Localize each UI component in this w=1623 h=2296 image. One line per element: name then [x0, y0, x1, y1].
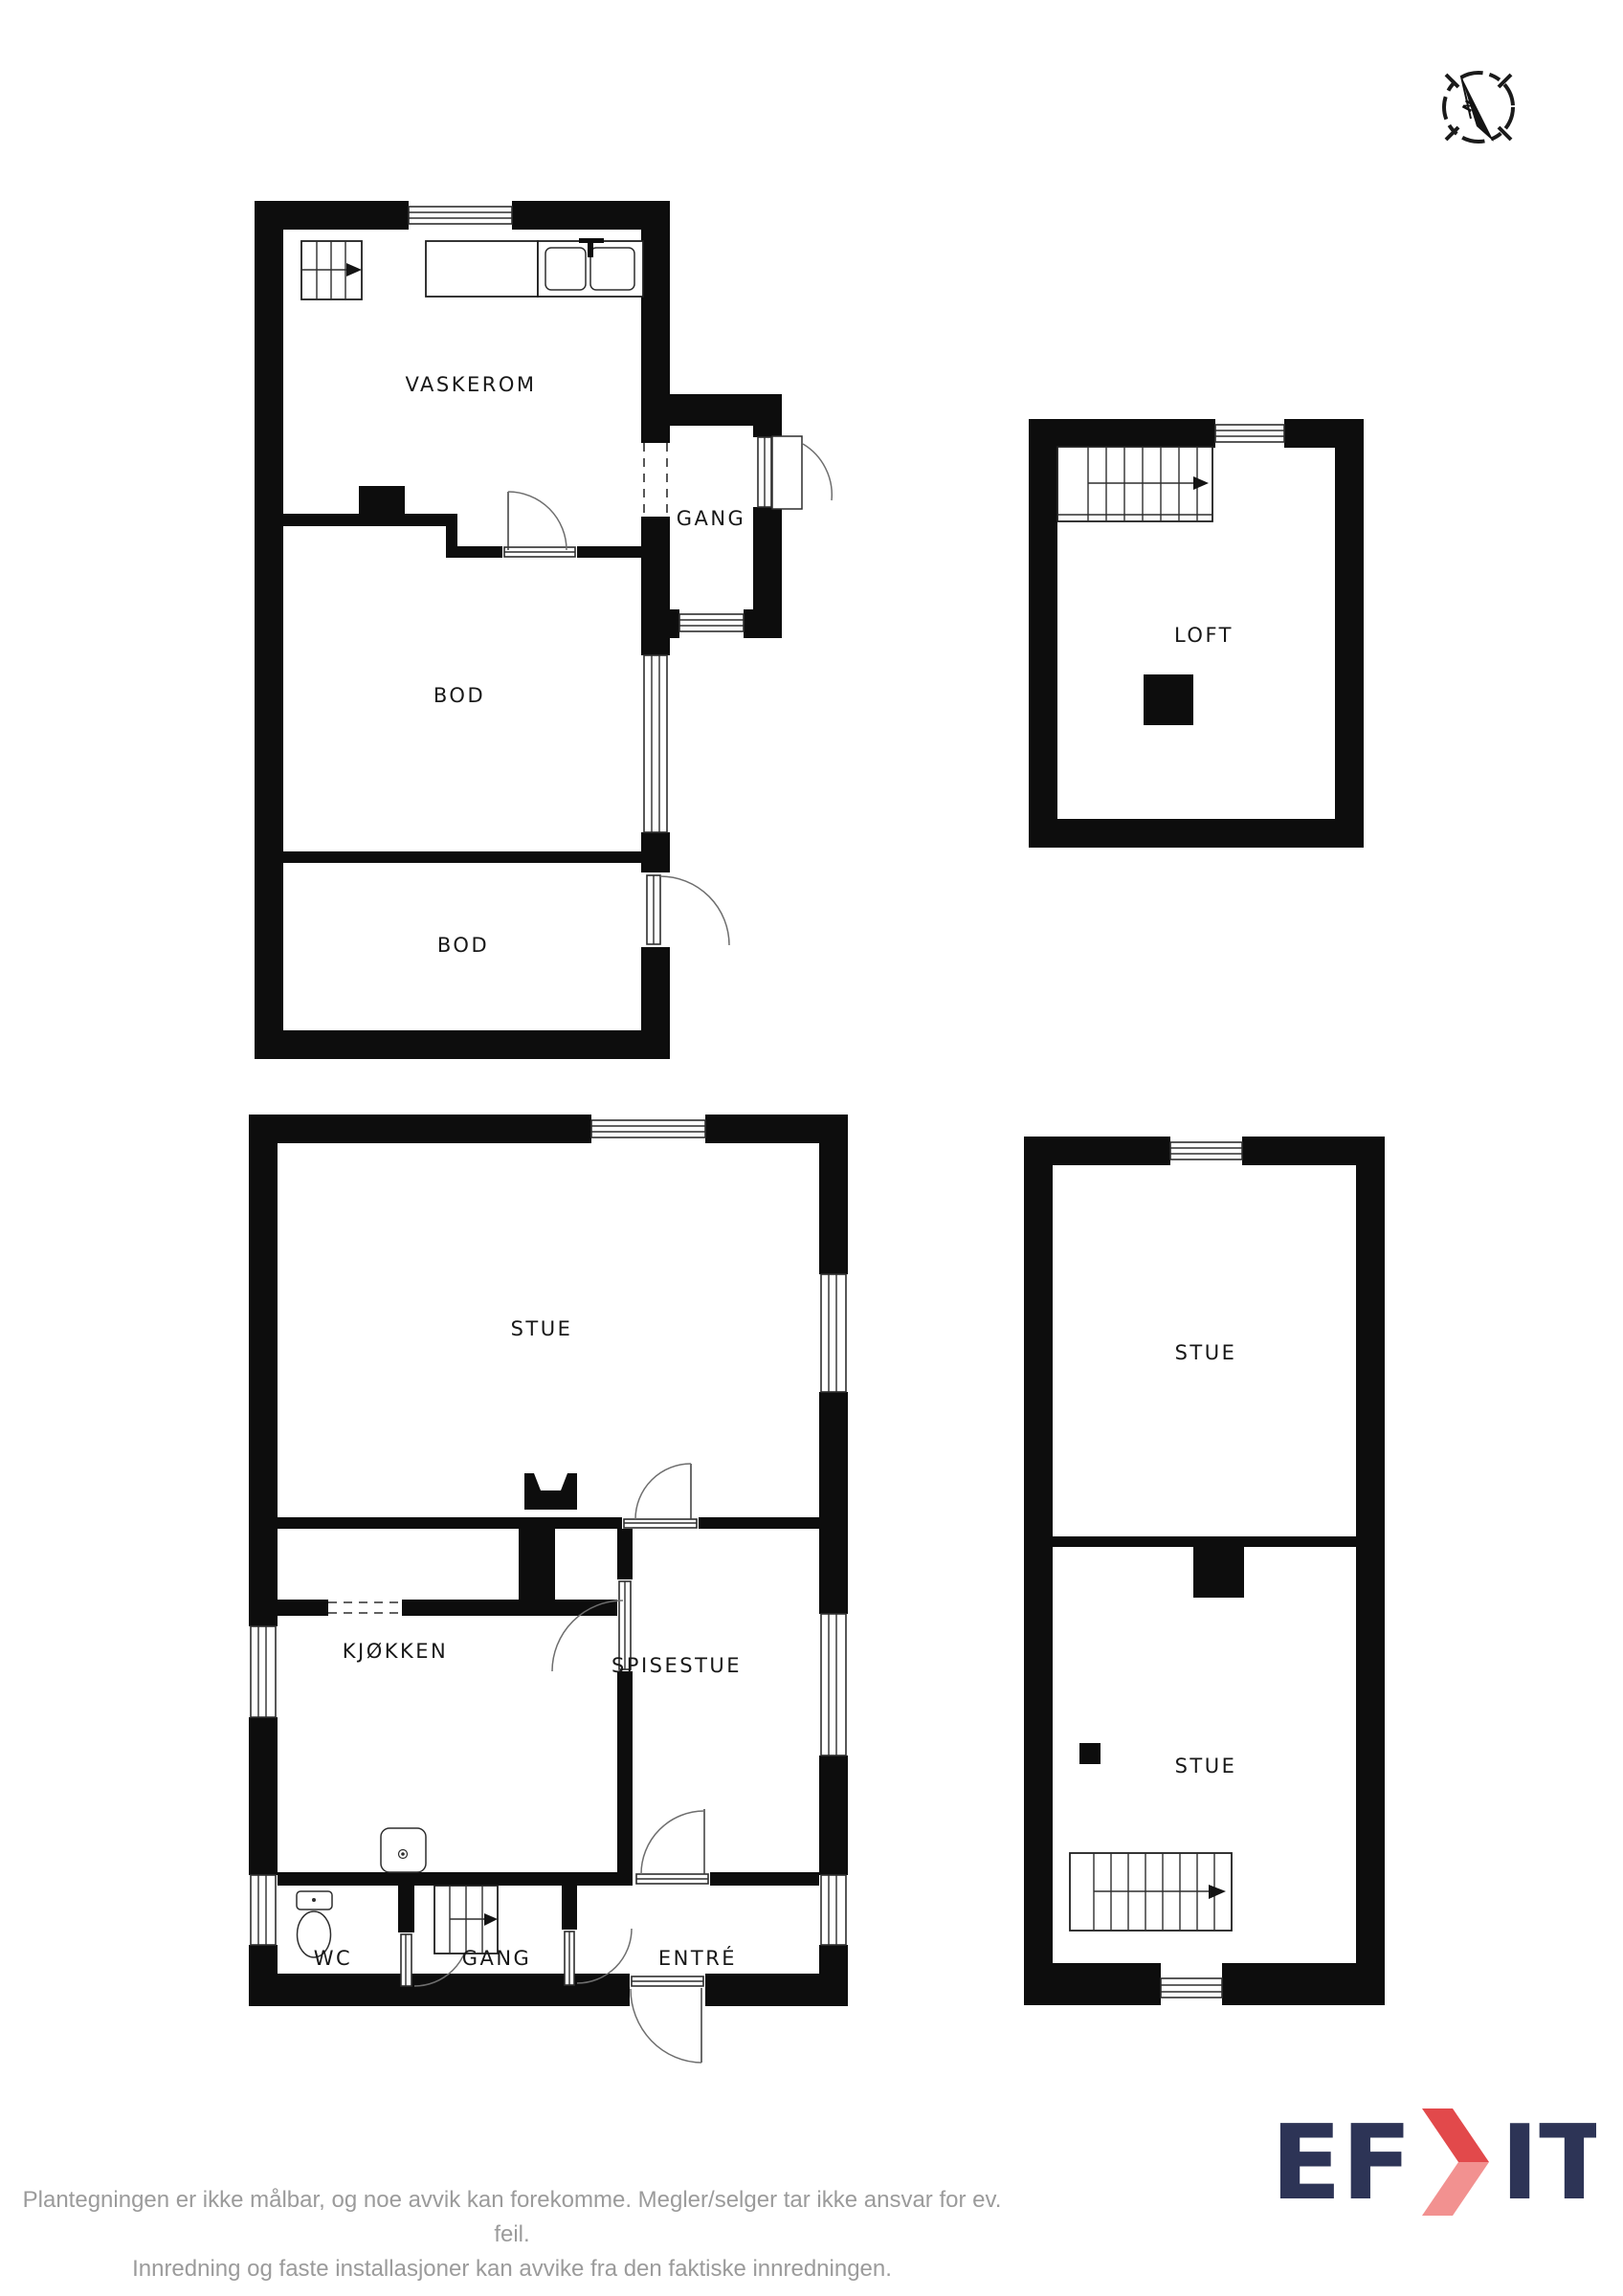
- window-symbol: [251, 1875, 276, 1945]
- compass-icon: N: [1444, 73, 1513, 142]
- efkt-logo: EF IT: [1271, 2105, 1596, 2223]
- room-label-vaskerom: VASKEROM: [406, 373, 537, 396]
- disclaimer-text: Plantegningen er ikke målbar, og noe avv…: [19, 2183, 1005, 2286]
- logo-text-right: IT: [1501, 2105, 1596, 2223]
- window-symbol: [251, 1626, 276, 1717]
- floor-plan-upper: STUE STUE: [1024, 1137, 1385, 2005]
- double-sink-icon: [538, 238, 643, 297]
- disclaimer-line-1: Plantegningen er ikke målbar, og noe avv…: [19, 2183, 1005, 2252]
- logo-chevron-lower: [1422, 2162, 1489, 2216]
- room-label-wc: WC: [314, 1947, 352, 1970]
- door-swing-icon: [502, 492, 577, 558]
- floorplan-drawing: N: [0, 0, 1623, 2296]
- room-label-gang: GANG: [462, 1947, 532, 1970]
- room-label-bod-2: BOD: [437, 934, 489, 957]
- open-passage-symbol: [328, 1600, 402, 1616]
- window-symbol: [1215, 425, 1284, 442]
- room-label-spisestue: SPISESTUE: [611, 1654, 742, 1677]
- fireplace-icon: [524, 1473, 577, 1510]
- window-symbol: [679, 614, 744, 631]
- floor-plan-loft: LOFT: [1029, 419, 1364, 848]
- door-swing-icon: [622, 1464, 699, 1529]
- stairs-icon: [434, 1886, 498, 1954]
- room-label-stue-upper: STUE: [1175, 1341, 1237, 1364]
- window-symbol: [644, 655, 667, 832]
- stairs-icon: [1070, 1853, 1232, 1931]
- room-label-loft: LOFT: [1174, 624, 1234, 647]
- floorplan-page: N: [0, 0, 1623, 2296]
- window-symbol: [591, 1120, 705, 1137]
- water-heater-icon: [381, 1828, 426, 1872]
- logo-chevron-upper: [1422, 2108, 1489, 2162]
- door-swing-icon: [753, 436, 832, 509]
- room-label-gang: GANG: [677, 507, 746, 530]
- window-symbol: [409, 207, 512, 224]
- window-symbol: [1161, 1963, 1222, 2005]
- main-walls: [249, 1115, 848, 2006]
- door-swing-icon: [630, 1974, 705, 2063]
- door-swing-icon: [641, 872, 729, 947]
- chimney-block: [1144, 674, 1193, 725]
- room-label-entre: ENTRÉ: [658, 1946, 737, 1970]
- stairs-icon: [301, 241, 362, 299]
- floor-plan-main: STUE KJØKKEN SPISESTUE WC GANG ENTRÉ: [249, 1115, 848, 2063]
- chimney-block: [1079, 1743, 1101, 1764]
- door-swing-icon: [634, 1809, 708, 1886]
- room-label-bod-1: BOD: [434, 684, 485, 707]
- window-symbol: [1170, 1142, 1242, 1159]
- stairs-icon: [1057, 447, 1212, 521]
- disclaimer-line-2: Innredning og faste installasjoner kan a…: [19, 2252, 1005, 2286]
- room-label-stue-lower: STUE: [1175, 1755, 1237, 1777]
- window-symbol: [821, 1614, 846, 1755]
- open-passage-symbol: [641, 443, 670, 517]
- window-symbol: [821, 1274, 846, 1392]
- window-symbol: [821, 1875, 846, 1945]
- room-label-stue: STUE: [511, 1317, 573, 1340]
- floor-plan-basement: VASKEROM GANG BOD BOD: [255, 201, 832, 1059]
- logo-text-left: EF: [1271, 2105, 1412, 2223]
- room-label-kjokken: KJØKKEN: [343, 1640, 449, 1663]
- counter-icon: [426, 241, 538, 297]
